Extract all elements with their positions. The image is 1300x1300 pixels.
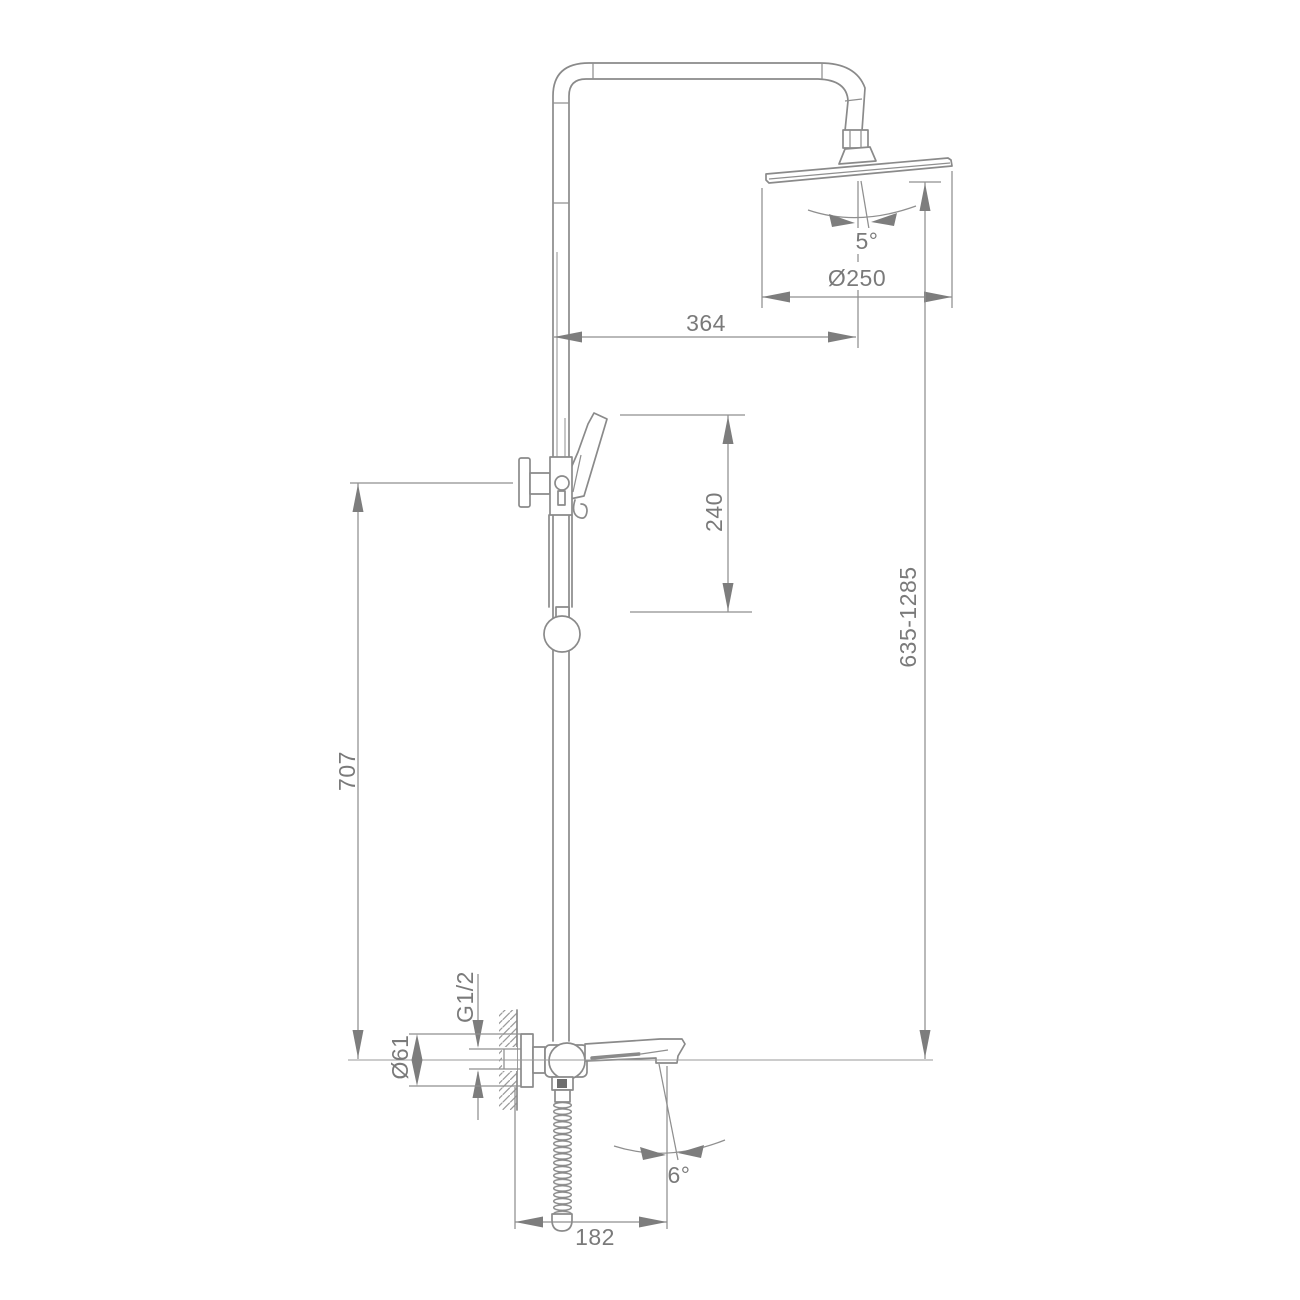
head-dia-arrow-right xyxy=(924,292,952,303)
dim-spout-reach: 182 xyxy=(575,1224,615,1250)
dim-column-height: 635-1285 xyxy=(895,566,921,667)
dim-spout-tilt: 6° xyxy=(668,1162,691,1188)
column-height-arrow-bottom xyxy=(920,1030,931,1058)
spout-reach-arrow-right xyxy=(639,1217,667,1228)
arm-reach-arrow-right xyxy=(828,332,856,343)
drawing-canvas: 5° Ø250 364 240 xyxy=(0,0,1300,1300)
holder-height-dimension: 707 xyxy=(334,483,513,1059)
holder-pivot xyxy=(555,476,569,490)
slider-travel-arrow-bottom xyxy=(723,583,734,611)
arm-reach-arrow-left xyxy=(554,332,582,343)
inlet-thread-dimension: G1/2 xyxy=(452,971,484,1120)
head-nut xyxy=(843,130,868,148)
hand-shower-assembly xyxy=(519,413,607,518)
spout-reach-ext-lines xyxy=(515,1066,667,1229)
spout-tilt-arc xyxy=(614,1140,725,1153)
slider-travel-ext-lines xyxy=(620,415,752,612)
holder-shaft xyxy=(530,473,550,494)
column-height-dimension: 635-1285 xyxy=(895,182,941,1059)
dim-slider-travel: 240 xyxy=(701,492,727,532)
dim-escutcheon-diameter: Ø61 xyxy=(387,1035,413,1080)
rain-shower-head xyxy=(766,130,952,183)
spout-tilt-annotation: 6° xyxy=(614,1064,725,1188)
shower-system-drawing: 5° Ø250 364 240 xyxy=(0,0,1300,1300)
holder-height-arrow-bottom xyxy=(353,1030,364,1058)
head-tilt-line xyxy=(861,181,869,229)
hose-nut-insert xyxy=(557,1079,567,1088)
dim-head-tilt: 5° xyxy=(856,228,879,254)
head-cone xyxy=(839,147,876,164)
arm-reach-dimension: 364 xyxy=(554,310,856,343)
slider-travel-dimension: 240 xyxy=(620,415,752,612)
head-tilt-arc xyxy=(808,206,916,218)
holder-height-arrow-top xyxy=(353,484,364,512)
holder-slot xyxy=(558,491,565,505)
slider-ball xyxy=(544,616,580,652)
head-dia-arrow-left xyxy=(762,292,790,303)
holder-wall-knob xyxy=(519,458,530,507)
pipe-outer-contour xyxy=(553,63,865,1041)
slider-travel-arrow-top xyxy=(723,416,734,444)
hose-connector xyxy=(555,1090,570,1102)
tilt-arc-arrow-left xyxy=(829,214,855,227)
slide-rail-lines xyxy=(557,252,565,457)
spout-reach-arrow-left xyxy=(515,1217,543,1228)
spout-tilt-line xyxy=(659,1064,678,1160)
shower-hose-coil xyxy=(552,1102,573,1214)
inlet-thread-arrow-up xyxy=(473,1070,484,1098)
dim-holder-height: 707 xyxy=(334,751,360,791)
riser-pipe-and-arm xyxy=(553,63,865,1041)
dim-head-diameter: Ø250 xyxy=(828,265,886,291)
spout xyxy=(585,1039,685,1063)
escutcheon-diamond-arrow xyxy=(412,1034,423,1086)
hand-shower-hook xyxy=(574,500,587,518)
column-height-arrow-top xyxy=(920,183,931,211)
mixer-assembly xyxy=(469,1010,685,1231)
dim-inlet-thread: G1/2 xyxy=(452,971,478,1023)
dimension-annotations: 5° Ø250 364 240 xyxy=(334,171,952,1250)
pipe-joint-ticks xyxy=(553,63,862,203)
mixer-valve xyxy=(549,1043,585,1079)
slider-section xyxy=(544,515,580,652)
pipe-inner-contour xyxy=(569,79,848,1041)
dim-arm-reach: 364 xyxy=(686,310,726,336)
